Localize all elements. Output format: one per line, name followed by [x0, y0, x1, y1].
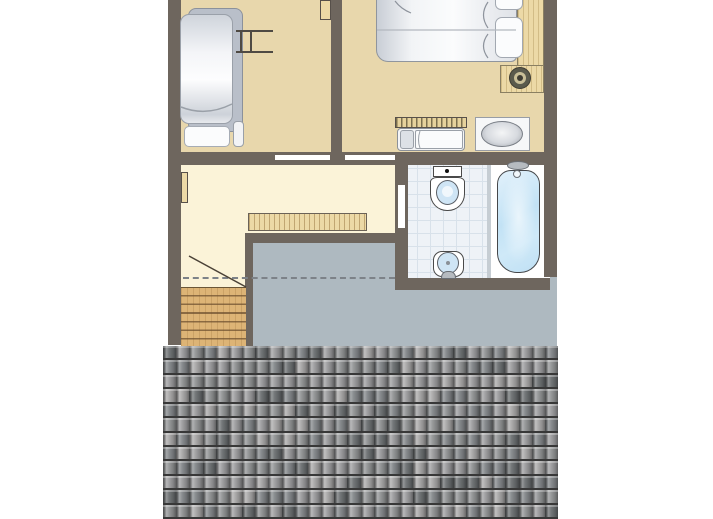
- roof-tile: [308, 505, 321, 519]
- roof-tile: [203, 505, 216, 519]
- roof-tile: [426, 375, 439, 389]
- roof-tile: [282, 447, 295, 461]
- roof-tile: [242, 389, 255, 403]
- roof-tile: [519, 418, 532, 432]
- roof-tile: [321, 505, 334, 519]
- roof-tiles: [163, 346, 558, 519]
- roof-tile: [519, 404, 532, 418]
- roof-tile: [255, 476, 268, 490]
- roof-tile: [413, 505, 426, 519]
- roof-tile: [545, 447, 558, 461]
- roof-tile: [440, 490, 453, 504]
- roof-tile: [189, 346, 202, 360]
- roof-tile: [347, 389, 360, 403]
- roof-tile: [295, 360, 308, 374]
- roof-tile: [387, 404, 400, 418]
- roof-tile: [268, 505, 281, 519]
- roof-tile: [545, 404, 558, 418]
- roof-tile: [532, 490, 545, 504]
- roof-tile: [321, 360, 334, 374]
- roof-tile: [466, 418, 479, 432]
- roof-tile: [387, 490, 400, 504]
- roof-tile: [453, 418, 466, 432]
- roof-tile: [216, 360, 229, 374]
- roof-tile: [321, 490, 334, 504]
- roof-tile: [229, 505, 242, 519]
- roof-tile: [347, 360, 360, 374]
- roof-tile: [347, 447, 360, 461]
- roof-tile: [163, 447, 176, 461]
- roof-tile: [492, 476, 505, 490]
- roof-tile: [229, 490, 242, 504]
- roof-tile: [505, 389, 518, 403]
- roof-tile: [189, 404, 202, 418]
- roof-tile: [229, 447, 242, 461]
- roof-tile: [426, 476, 439, 490]
- roof-tile: [321, 476, 334, 490]
- roof-tile: [203, 461, 216, 475]
- roof-tile: [321, 447, 334, 461]
- radiator-door-leaf-left: [181, 172, 188, 203]
- roof-tile: [163, 389, 176, 403]
- roof-tile: [426, 461, 439, 475]
- roof-tile: [505, 433, 518, 447]
- roof-tile: [361, 418, 374, 432]
- roof-tile: [347, 476, 360, 490]
- hand-basin-tap: [441, 271, 456, 279]
- roof-tile: [229, 389, 242, 403]
- roof-tile: [545, 360, 558, 374]
- roof-tile: [440, 418, 453, 432]
- roof-tile: [295, 418, 308, 432]
- roof-tile: [387, 447, 400, 461]
- roof-tile: [387, 433, 400, 447]
- roof-tile: [453, 389, 466, 403]
- bathroom-bottom-wall: [395, 278, 550, 290]
- roof-tile: [400, 461, 413, 475]
- roof-tile: [400, 433, 413, 447]
- roof-tile: [413, 375, 426, 389]
- roof-tile: [387, 389, 400, 403]
- roof-tile: [295, 389, 308, 403]
- roof-tile: [400, 447, 413, 461]
- roof-tile: [505, 461, 518, 475]
- roof-tile: [229, 461, 242, 475]
- roof-tile: [321, 404, 334, 418]
- roof-tile: [545, 375, 558, 389]
- roof-tile: [466, 461, 479, 475]
- roof-tile: [505, 346, 518, 360]
- roof-tile: [479, 418, 492, 432]
- roof-tile: [308, 404, 321, 418]
- roof-tile: [229, 476, 242, 490]
- roof-tile: [189, 505, 202, 519]
- roof-tile: [545, 505, 558, 519]
- roof-tile: [242, 404, 255, 418]
- low-headroom-zone-right-sliver: [550, 277, 557, 290]
- roof-tile: [334, 404, 347, 418]
- roof-tile: [492, 447, 505, 461]
- roof-tile: [413, 461, 426, 475]
- roof-tile: [426, 505, 439, 519]
- roof-tile: [268, 476, 281, 490]
- roof-tile: [479, 490, 492, 504]
- roof-tile: [374, 433, 387, 447]
- roof-tile: [479, 447, 492, 461]
- roof-tile: [374, 447, 387, 461]
- roof-tile: [453, 461, 466, 475]
- roof-tile: [295, 404, 308, 418]
- roof-tile: [453, 505, 466, 519]
- roof-tile: [203, 433, 216, 447]
- roof-tile: [216, 404, 229, 418]
- roof-tile: [545, 433, 558, 447]
- roof-tile: [242, 433, 255, 447]
- roof-tile: [163, 346, 176, 360]
- roof-tile: [426, 418, 439, 432]
- roof-tile: [466, 490, 479, 504]
- roof-tile: [308, 490, 321, 504]
- roof-tile: [203, 447, 216, 461]
- roof-tile: [413, 433, 426, 447]
- roof-tile: [268, 404, 281, 418]
- hand-basin-drain: [446, 261, 450, 265]
- roof-tile: [466, 375, 479, 389]
- roof-tile: [466, 346, 479, 360]
- roof-tile: [453, 346, 466, 360]
- roof-tile: [203, 375, 216, 389]
- roof-tile: [295, 447, 308, 461]
- roof-tile: [163, 461, 176, 475]
- roof-tile: [466, 433, 479, 447]
- roof-tile: [321, 418, 334, 432]
- roof-tile: [255, 404, 268, 418]
- roof-tile: [426, 404, 439, 418]
- roof-tile: [308, 346, 321, 360]
- roof-tile: [374, 461, 387, 475]
- roof-tile: [453, 375, 466, 389]
- roof-tile: [361, 375, 374, 389]
- roof-tile: [334, 375, 347, 389]
- roof-tile: [334, 389, 347, 403]
- stair-railing: [248, 213, 367, 231]
- roof-tile: [176, 433, 189, 447]
- roof-tile: [492, 418, 505, 432]
- roof-tile: [387, 346, 400, 360]
- roof-tile: [532, 447, 545, 461]
- roof-tile: [440, 360, 453, 374]
- roof-tile: [189, 375, 202, 389]
- roof-tile: [466, 447, 479, 461]
- roof-tile: [216, 476, 229, 490]
- roof-tile: [308, 360, 321, 374]
- roof-tile: [203, 404, 216, 418]
- roof-tile: [282, 505, 295, 519]
- roof-tile: [453, 447, 466, 461]
- roof-tile: [216, 389, 229, 403]
- roof-tile: [426, 346, 439, 360]
- roof-tile: [321, 433, 334, 447]
- roof-tile: [387, 418, 400, 432]
- roof-tile: [347, 375, 360, 389]
- roof-tile: [519, 461, 532, 475]
- roof-tile: [374, 505, 387, 519]
- bathtub: [497, 170, 540, 273]
- roof-tile: [268, 447, 281, 461]
- roof-tile: [189, 389, 202, 403]
- corner-knob: [509, 67, 531, 89]
- roof-tile: [242, 418, 255, 432]
- stairs: [181, 287, 246, 347]
- roof-tile: [334, 433, 347, 447]
- roof-tile: [545, 476, 558, 490]
- roof-tile: [505, 476, 518, 490]
- roof-tile: [505, 375, 518, 389]
- roof-tile: [203, 476, 216, 490]
- roof-tile: [387, 375, 400, 389]
- roof-tile: [532, 404, 545, 418]
- roof-tile: [440, 346, 453, 360]
- roof-tile: [400, 490, 413, 504]
- roof-tile: [374, 476, 387, 490]
- roof-tile: [532, 476, 545, 490]
- roof-tile: [334, 346, 347, 360]
- roof-tile: [308, 461, 321, 475]
- roof-tile: [519, 346, 532, 360]
- roof-tile: [400, 505, 413, 519]
- roof-tile: [374, 360, 387, 374]
- roof-tile: [163, 505, 176, 519]
- roof-tile: [492, 433, 505, 447]
- roof-tile: [321, 346, 334, 360]
- roof-tile: [532, 505, 545, 519]
- roof-tile: [229, 404, 242, 418]
- roof-tile: [361, 389, 374, 403]
- roof-tile: [453, 360, 466, 374]
- roof-tile: [413, 476, 426, 490]
- roof-tile: [163, 490, 176, 504]
- crib-pillow: [400, 130, 414, 149]
- roof-tile: [229, 433, 242, 447]
- bathtub-faucet: [507, 161, 529, 170]
- roof-tile: [361, 346, 374, 360]
- roof-tile: [176, 360, 189, 374]
- roof-tile: [163, 404, 176, 418]
- roof-tile: [268, 490, 281, 504]
- roof-tile: [216, 433, 229, 447]
- bedroom-divider-wall: [331, 0, 342, 165]
- roof-tile: [453, 476, 466, 490]
- roof-tile: [334, 447, 347, 461]
- roof-tile: [176, 404, 189, 418]
- roof-tile: [295, 346, 308, 360]
- roof-tile: [361, 461, 374, 475]
- roof-tile: [176, 375, 189, 389]
- roof-tile: [466, 404, 479, 418]
- roof-tile: [295, 476, 308, 490]
- roof-tile: [387, 360, 400, 374]
- roof-tile: [255, 447, 268, 461]
- roof-tile: [374, 346, 387, 360]
- roof-tile: [374, 404, 387, 418]
- roof-tile: [519, 360, 532, 374]
- roof-tile: [519, 490, 532, 504]
- roof-tile: [479, 389, 492, 403]
- roof-tile: [440, 375, 453, 389]
- roof-tile: [466, 505, 479, 519]
- stairwell-wall-vertical: [245, 233, 253, 347]
- roof-tile: [347, 461, 360, 475]
- double-bed-pillow-upper: [495, 0, 523, 10]
- crib-rail: [395, 117, 467, 128]
- roof-tile: [203, 389, 216, 403]
- roof-tile: [374, 389, 387, 403]
- bunk-bed-mattress: [180, 14, 233, 124]
- roof-tile: [268, 360, 281, 374]
- roof-tile: [189, 490, 202, 504]
- roof-tile: [282, 346, 295, 360]
- roof-tile: [426, 389, 439, 403]
- roof-tile: [479, 404, 492, 418]
- double-bed-pillow-lower: [495, 17, 523, 58]
- low-headroom-zone-bottom: [395, 290, 557, 347]
- bunk-bed-upper-pillow: [233, 121, 244, 147]
- roof-tile: [203, 418, 216, 432]
- roof-tile: [413, 447, 426, 461]
- roof-tile: [361, 360, 374, 374]
- roof-tile: [242, 360, 255, 374]
- roof-tile: [479, 505, 492, 519]
- roof-tile: [361, 404, 374, 418]
- roof-tile: [282, 461, 295, 475]
- roof-tile: [347, 404, 360, 418]
- low-headroom-zone-left: [253, 243, 395, 347]
- roof-tile: [255, 505, 268, 519]
- roof-tile: [466, 360, 479, 374]
- roof-tile: [374, 490, 387, 504]
- roof-tile: [505, 505, 518, 519]
- roof-tile: [413, 418, 426, 432]
- roof-tile: [532, 461, 545, 475]
- roof-tile: [440, 447, 453, 461]
- roof-tile: [492, 461, 505, 475]
- roof-tile: [400, 389, 413, 403]
- roof-tile: [347, 490, 360, 504]
- roof-tile: [400, 476, 413, 490]
- roof-tile: [295, 505, 308, 519]
- roof-tile: [203, 346, 216, 360]
- roof-tile: [400, 346, 413, 360]
- roof-tile: [440, 389, 453, 403]
- roof-tile: [492, 360, 505, 374]
- roof-tile: [268, 433, 281, 447]
- roof-tile: [216, 461, 229, 475]
- roof-tile: [255, 375, 268, 389]
- roof-tile: [492, 505, 505, 519]
- corner-knob-center: [517, 75, 523, 81]
- headroom-dashed-line: [183, 277, 395, 279]
- roof-tile: [282, 433, 295, 447]
- roof-tile: [189, 433, 202, 447]
- roof-tile: [321, 461, 334, 475]
- corner-knob-ring: [514, 72, 526, 84]
- roof-tile: [479, 476, 492, 490]
- roof-tile: [255, 490, 268, 504]
- roof-tile: [334, 476, 347, 490]
- roof-tile: [479, 461, 492, 475]
- roof-tile: [255, 461, 268, 475]
- roof-tile: [334, 490, 347, 504]
- roof-tile: [308, 375, 321, 389]
- roof-tile: [229, 360, 242, 374]
- roof-tile: [295, 461, 308, 475]
- toilet-bowl-highlight: [442, 186, 453, 197]
- roof-tile: [308, 476, 321, 490]
- roof-tile: [479, 433, 492, 447]
- crib-mattress: [415, 130, 463, 149]
- roof-tile: [189, 447, 202, 461]
- roof-tile: [308, 389, 321, 403]
- roof-tile: [229, 375, 242, 389]
- bunk-bed-pillow: [184, 126, 230, 147]
- roof-tile: [189, 360, 202, 374]
- roof-tile: [163, 375, 176, 389]
- roof-tile: [334, 461, 347, 475]
- roof-tile: [532, 389, 545, 403]
- roof-tile: [176, 461, 189, 475]
- roof-tile: [400, 360, 413, 374]
- toilet-tank-button: [445, 169, 449, 173]
- roof-tile: [361, 476, 374, 490]
- roof-tile: [545, 346, 558, 360]
- bathroom-door-opening: [398, 185, 405, 228]
- roof-tile: [308, 447, 321, 461]
- bedroom-right-door-opening: [345, 155, 395, 160]
- roof-tile: [532, 360, 545, 374]
- roof-tile: [466, 476, 479, 490]
- roof-tile: [189, 461, 202, 475]
- roof-tile: [295, 375, 308, 389]
- roof-tile: [545, 418, 558, 432]
- roof-tile: [492, 346, 505, 360]
- roof-tile: [203, 490, 216, 504]
- roof-tile: [347, 505, 360, 519]
- roof-tile: [361, 490, 374, 504]
- roof-tile: [532, 433, 545, 447]
- roof-tile: [532, 418, 545, 432]
- roof-tile: [505, 490, 518, 504]
- roof-tile: [308, 418, 321, 432]
- roof-tile: [440, 476, 453, 490]
- roof-tile: [163, 418, 176, 432]
- roof-tile: [216, 490, 229, 504]
- roof-tile: [308, 433, 321, 447]
- roof-tile: [453, 433, 466, 447]
- roof-tile: [387, 461, 400, 475]
- roof-tile: [505, 360, 518, 374]
- roof-tile: [440, 461, 453, 475]
- roof-tile: [453, 490, 466, 504]
- roof-tile: [229, 418, 242, 432]
- roof-tile: [545, 461, 558, 475]
- roof-tile: [189, 476, 202, 490]
- roof-tile: [282, 389, 295, 403]
- door-leaf-top: [320, 0, 331, 20]
- roof-tile: [334, 505, 347, 519]
- roof-tile: [387, 476, 400, 490]
- roof-tile: [492, 404, 505, 418]
- roof-tile: [413, 360, 426, 374]
